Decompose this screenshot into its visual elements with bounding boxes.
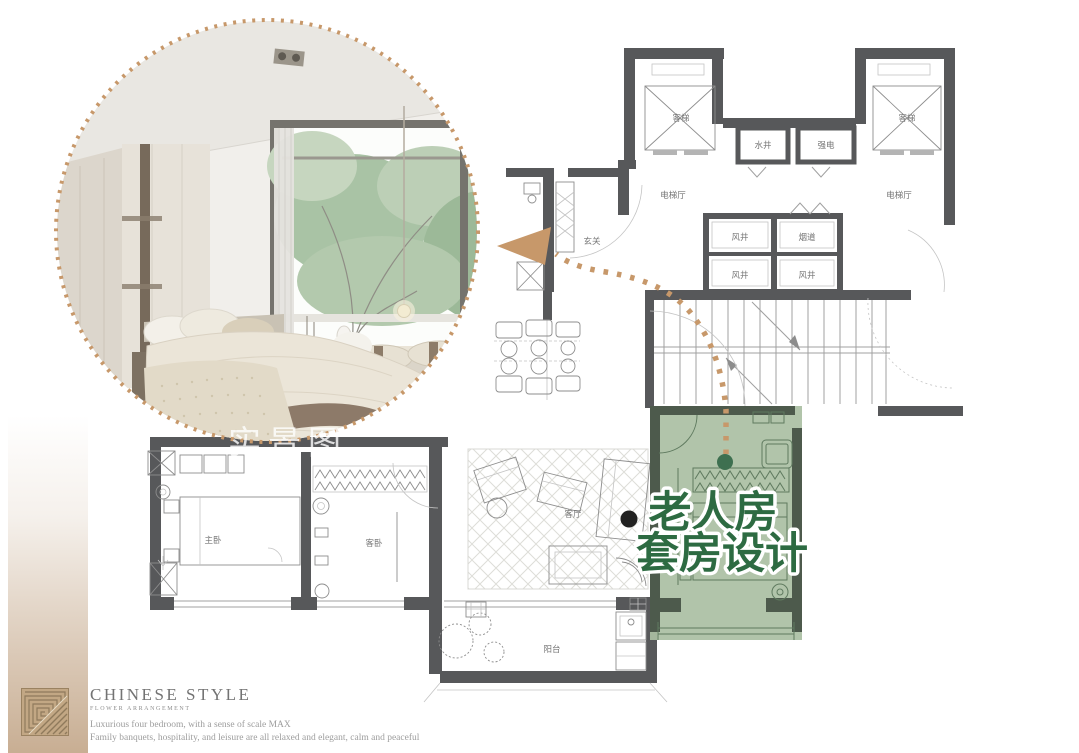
label-guest-bedroom: 客卧 xyxy=(365,538,383,548)
living-room: 客厅 xyxy=(444,449,650,610)
label-wind-shaft-3: 风井 xyxy=(798,270,815,280)
brand-logo xyxy=(21,688,69,736)
label-elevator-right: 客梯 xyxy=(898,113,916,123)
label-elevator-left: 客梯 xyxy=(672,113,690,123)
elevator-right-block: 客梯 xyxy=(855,48,955,163)
highlighted-suite xyxy=(650,406,802,640)
brand-line1: Luxurious four bedroom, with a sense of … xyxy=(90,719,419,732)
label-entry: 玄关 xyxy=(583,236,601,246)
label-elevator-hall-left: 电梯厅 xyxy=(660,190,686,200)
wind-shaft-block: 风井 烟道 风井 风井 xyxy=(706,203,840,292)
label-flue: 烟道 xyxy=(798,232,816,242)
bedroom-photo-art xyxy=(52,16,482,446)
brand-tagline: Luxurious four bedroom, with a sense of … xyxy=(90,719,419,745)
label-strong-electric: 强电 xyxy=(817,140,835,150)
entry-area: 玄关 xyxy=(506,160,642,400)
photo-watermark: 实景图 xyxy=(228,416,348,464)
master-bedroom: 主卧 xyxy=(148,451,300,595)
bedroom-photo: 实景图 xyxy=(52,16,482,446)
balcony: 阳台 xyxy=(424,597,667,702)
label-living-room: 客厅 xyxy=(564,509,582,519)
brand-title: CHINESE STYLE xyxy=(90,685,419,705)
brand-line2: Family banquets, hospitality, and leisur… xyxy=(90,732,419,745)
page: 客梯 客梯 水井 强电 电梯厅 电梯厅 xyxy=(0,0,1079,753)
shaft-rooms: 水井 强电 xyxy=(723,118,856,177)
label-balcony: 阳台 xyxy=(543,644,560,654)
label-elevator-hall-right: 电梯厅 xyxy=(886,190,912,200)
brand-subtitle: FLOWER ARRANGEMENT xyxy=(90,706,419,712)
elevator-left-block: 客梯 xyxy=(624,48,724,163)
label-wind-shaft-2: 风井 xyxy=(731,270,748,280)
brand-block: CHINESE STYLE FLOWER ARRANGEMENT Luxurio… xyxy=(90,685,419,745)
guest-bedroom: 客卧 xyxy=(313,463,438,598)
dining-set xyxy=(494,320,580,394)
label-water-shaft: 水井 xyxy=(754,140,771,150)
label-master-bedroom: 主卧 xyxy=(204,535,222,545)
label-wind-shaft-1: 风井 xyxy=(731,232,748,242)
